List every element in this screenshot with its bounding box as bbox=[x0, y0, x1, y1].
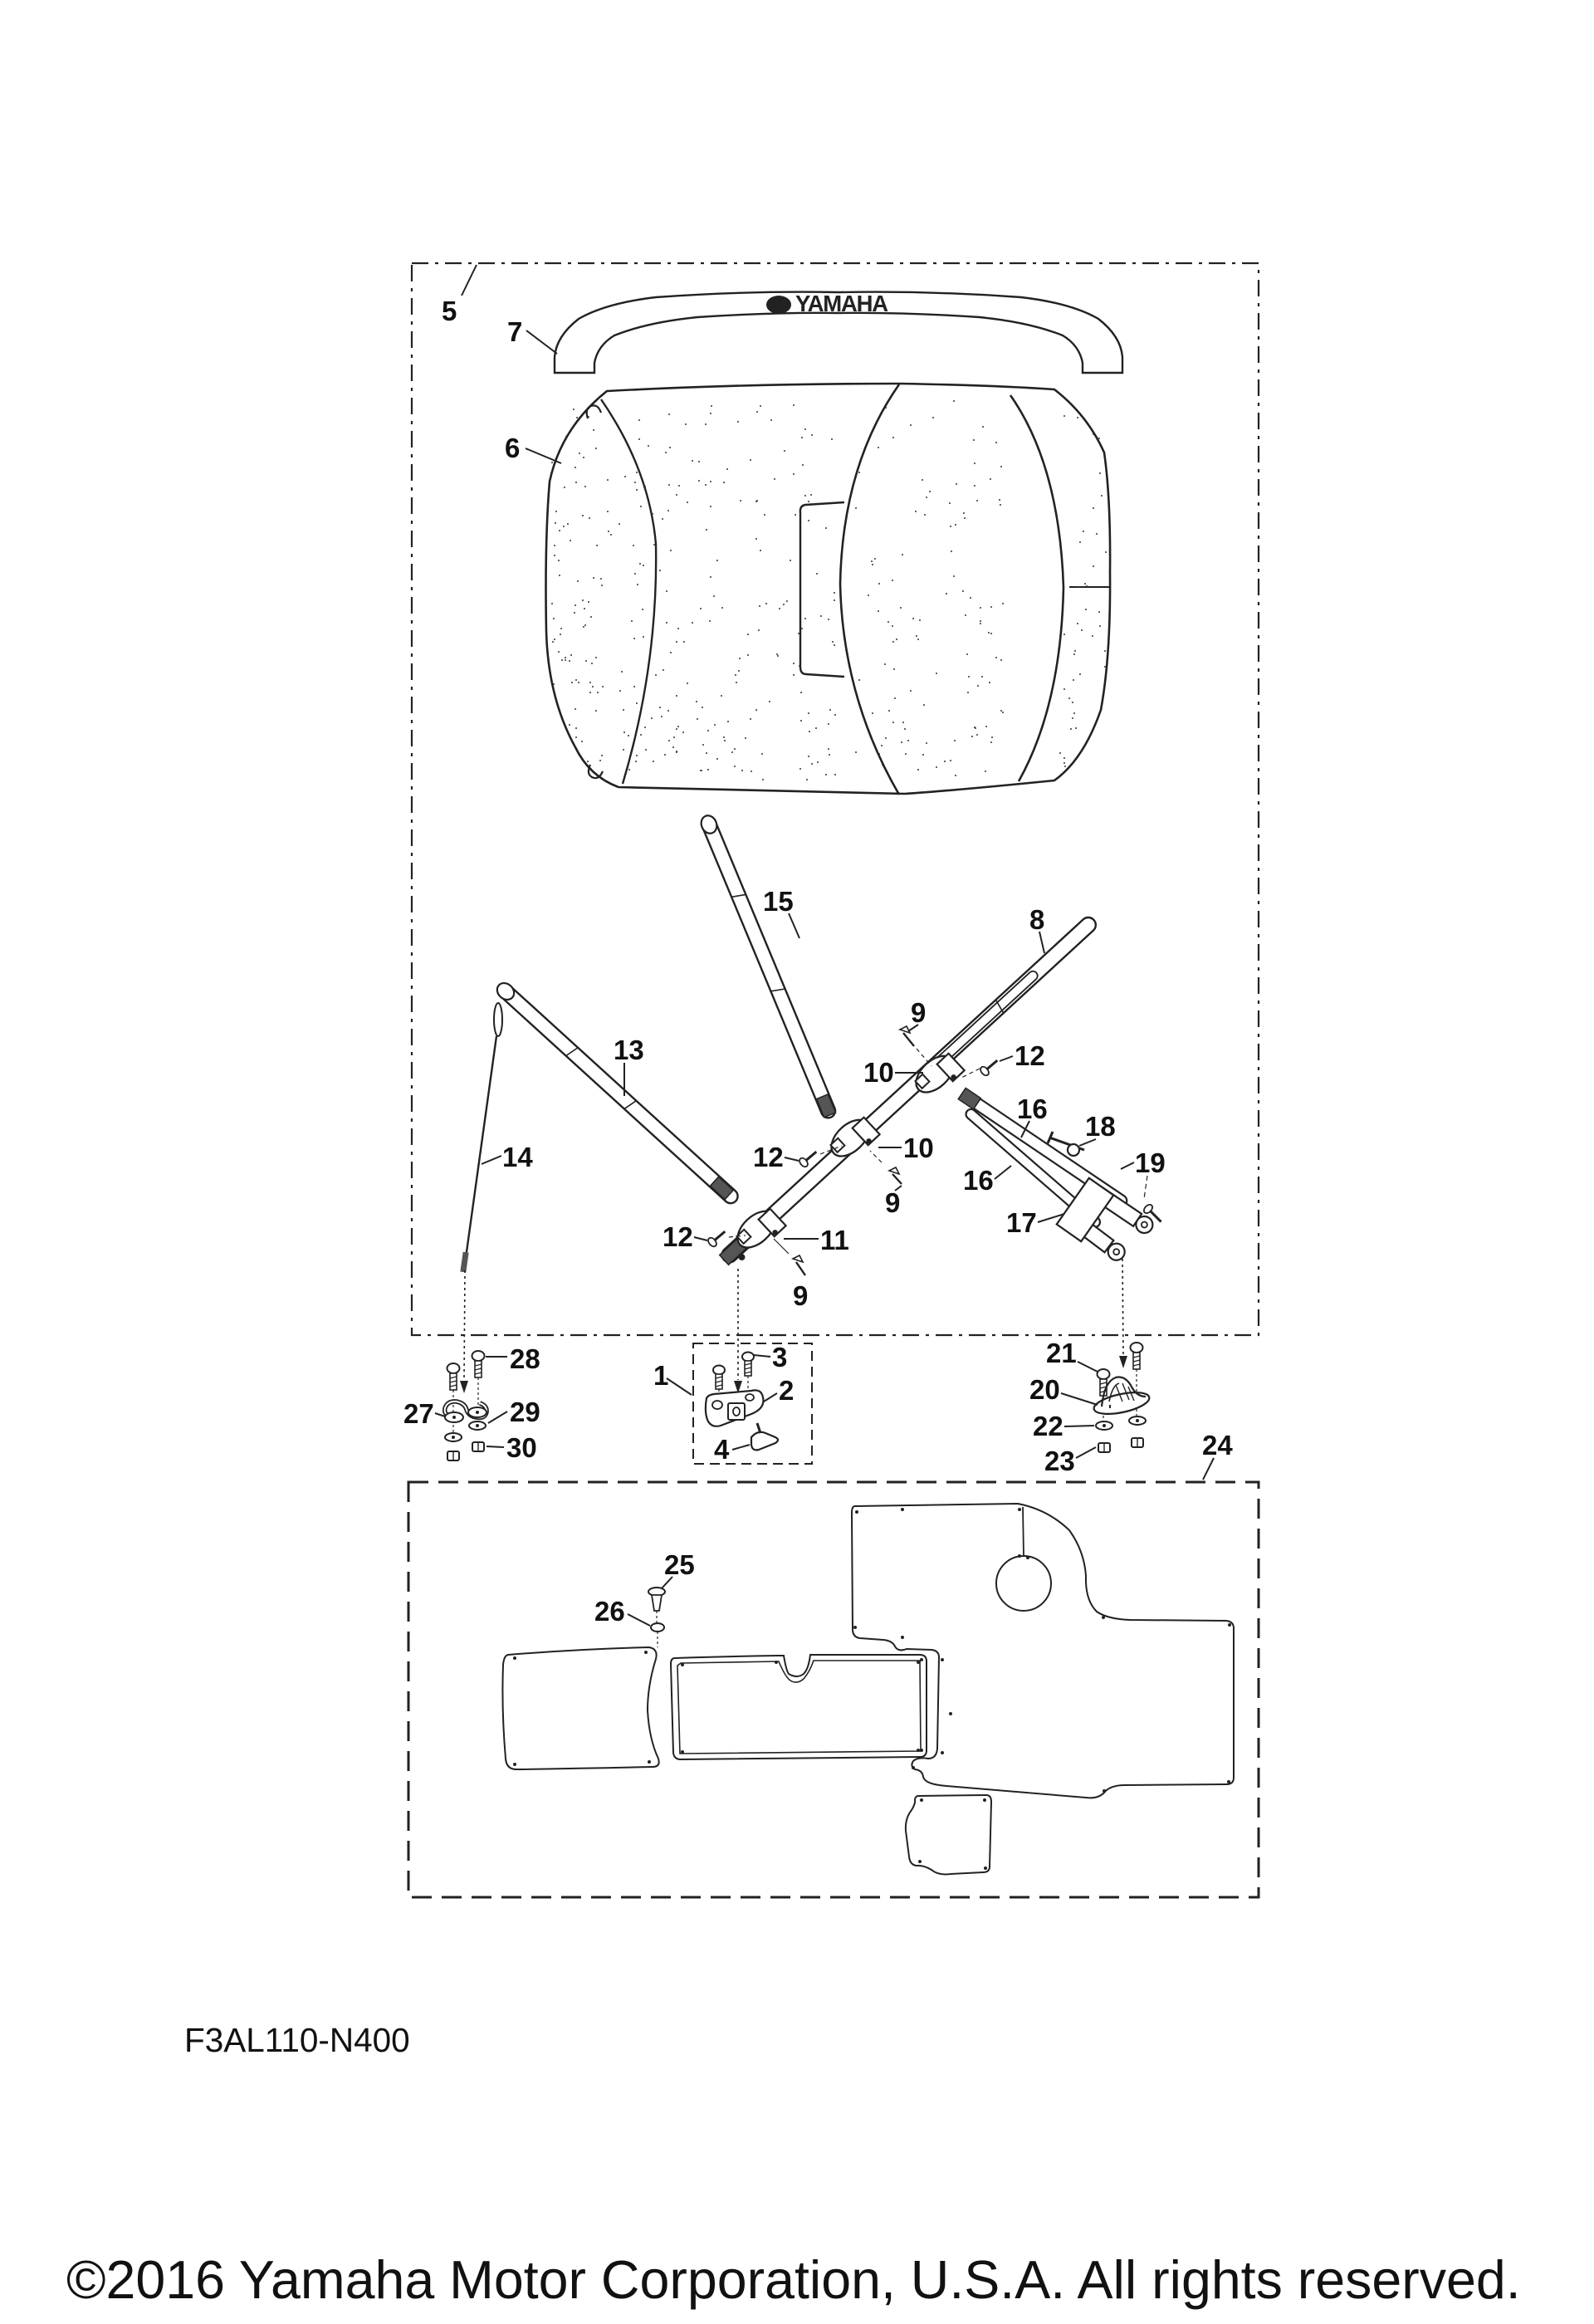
svg-text:12: 12 bbox=[663, 1221, 693, 1252]
svg-text:1: 1 bbox=[653, 1360, 668, 1391]
svg-text:25: 25 bbox=[664, 1549, 695, 1580]
svg-text:21: 21 bbox=[1046, 1338, 1077, 1368]
svg-text:9: 9 bbox=[793, 1280, 808, 1311]
svg-text:12: 12 bbox=[753, 1142, 784, 1172]
svg-text:©2016 Yamaha Motor Corporation: ©2016 Yamaha Motor Corporation, U.S.A. A… bbox=[66, 2250, 1521, 2310]
svg-text:15: 15 bbox=[763, 886, 794, 917]
svg-text:6: 6 bbox=[505, 433, 520, 463]
svg-text:8: 8 bbox=[1029, 904, 1044, 935]
svg-text:9: 9 bbox=[885, 1187, 900, 1218]
svg-text:24: 24 bbox=[1202, 1430, 1233, 1460]
svg-text:13: 13 bbox=[614, 1035, 644, 1065]
svg-text:19: 19 bbox=[1135, 1147, 1166, 1178]
svg-text:YAMAHA: YAMAHA bbox=[795, 291, 888, 316]
svg-text:28: 28 bbox=[510, 1343, 540, 1374]
svg-text:2: 2 bbox=[779, 1375, 794, 1406]
svg-text:3: 3 bbox=[772, 1342, 787, 1372]
svg-text:23: 23 bbox=[1044, 1446, 1075, 1476]
svg-text:20: 20 bbox=[1029, 1374, 1060, 1405]
svg-text:17: 17 bbox=[1006, 1207, 1037, 1238]
svg-text:27: 27 bbox=[403, 1398, 434, 1429]
svg-text:4: 4 bbox=[714, 1434, 730, 1465]
svg-text:12: 12 bbox=[1015, 1040, 1045, 1071]
svg-text:22: 22 bbox=[1033, 1411, 1063, 1441]
svg-text:7: 7 bbox=[507, 316, 522, 347]
svg-text:9: 9 bbox=[911, 997, 926, 1028]
svg-text:18: 18 bbox=[1085, 1111, 1116, 1142]
svg-text:29: 29 bbox=[510, 1397, 540, 1427]
svg-text:F3AL110-N400: F3AL110-N400 bbox=[184, 2021, 410, 2059]
svg-text:11: 11 bbox=[820, 1225, 849, 1255]
svg-text:10: 10 bbox=[903, 1133, 934, 1163]
svg-text:26: 26 bbox=[594, 1596, 625, 1627]
svg-text:16: 16 bbox=[1017, 1094, 1048, 1124]
svg-text:5: 5 bbox=[442, 296, 457, 326]
svg-text:30: 30 bbox=[506, 1432, 537, 1463]
svg-text:14: 14 bbox=[502, 1142, 533, 1172]
svg-text:16: 16 bbox=[963, 1165, 994, 1196]
svg-text:10: 10 bbox=[863, 1057, 894, 1088]
